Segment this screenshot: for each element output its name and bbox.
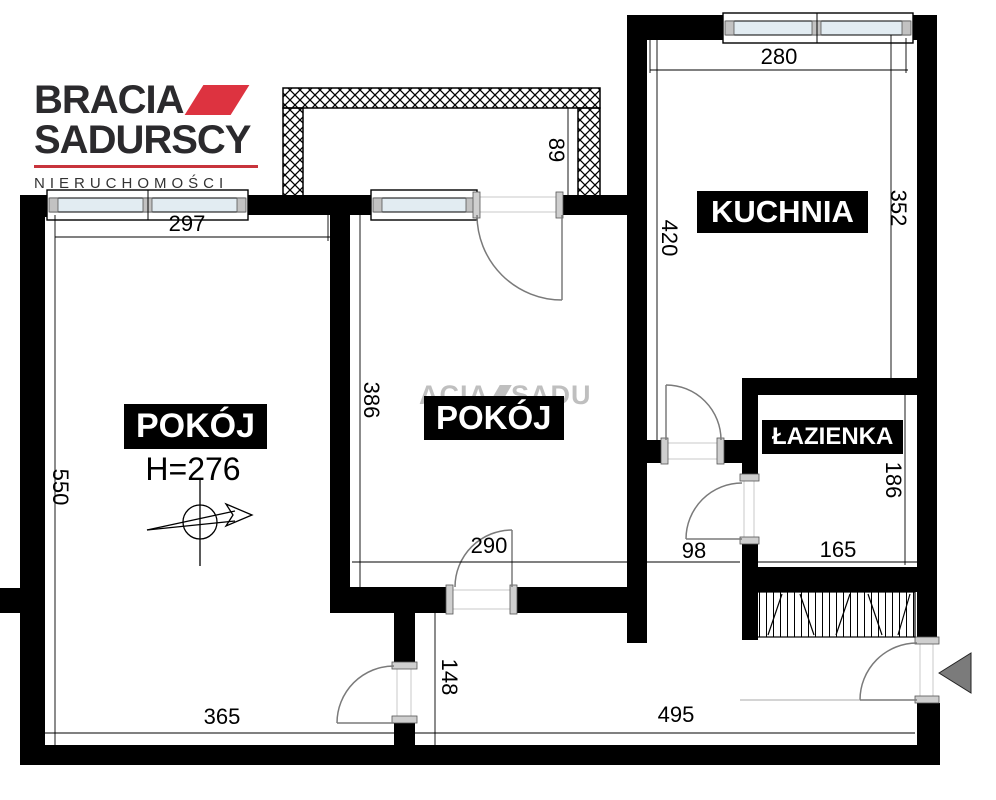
wardrobe-hatch <box>757 592 915 637</box>
room-label-bathroom: ŁAZIENKA <box>762 420 903 454</box>
room-label-left: POKÓJ <box>124 404 267 449</box>
dim-left-room-width-bottom: 365 <box>182 704 262 730</box>
dim-hall-passage-width: 98 <box>654 538 734 564</box>
dim-left-room-width-top: 297 <box>147 211 227 237</box>
dim-kitchen-height-left: 420 <box>657 203 681 273</box>
dim-kitchen-height-right: 352 <box>886 173 910 243</box>
dim-mid-room-width: 290 <box>449 533 529 559</box>
dim-balcony-depth: 89 <box>544 115 568 185</box>
logo-subtitle: NIERUCHOMOŚCI <box>34 175 258 192</box>
ceiling-height-label: H=276 <box>128 451 258 488</box>
dim-kitchen-width: 280 <box>739 44 819 70</box>
floor-plan: BRACIA SADURSCY NIERUCHOMOŚCI ACIA SADU … <box>0 0 996 800</box>
logo-rule <box>34 165 258 168</box>
window-kitchen <box>723 13 913 43</box>
window-mid-room <box>371 190 477 220</box>
dim-left-room-height: 550 <box>48 452 72 522</box>
dim-bathroom-height: 186 <box>881 445 905 515</box>
dim-hall-width: 148 <box>437 642 461 712</box>
entrance-arrow-icon <box>939 653 971 693</box>
room-label-mid: POKÓJ <box>424 396 564 440</box>
logo-line2: SADURSCY <box>34 120 250 160</box>
dim-bathroom-width: 165 <box>798 537 878 563</box>
room-label-kitchen: KUCHNIA <box>697 191 868 233</box>
dim-mid-room-height: 386 <box>359 365 383 435</box>
logo-line1: BRACIA <box>34 80 184 120</box>
logo-flag-icon <box>184 85 249 115</box>
north-arrow-icon <box>147 478 252 566</box>
agency-logo: BRACIA SADURSCY NIERUCHOMOŚCI <box>34 80 258 192</box>
dim-hall-length: 495 <box>636 702 716 728</box>
